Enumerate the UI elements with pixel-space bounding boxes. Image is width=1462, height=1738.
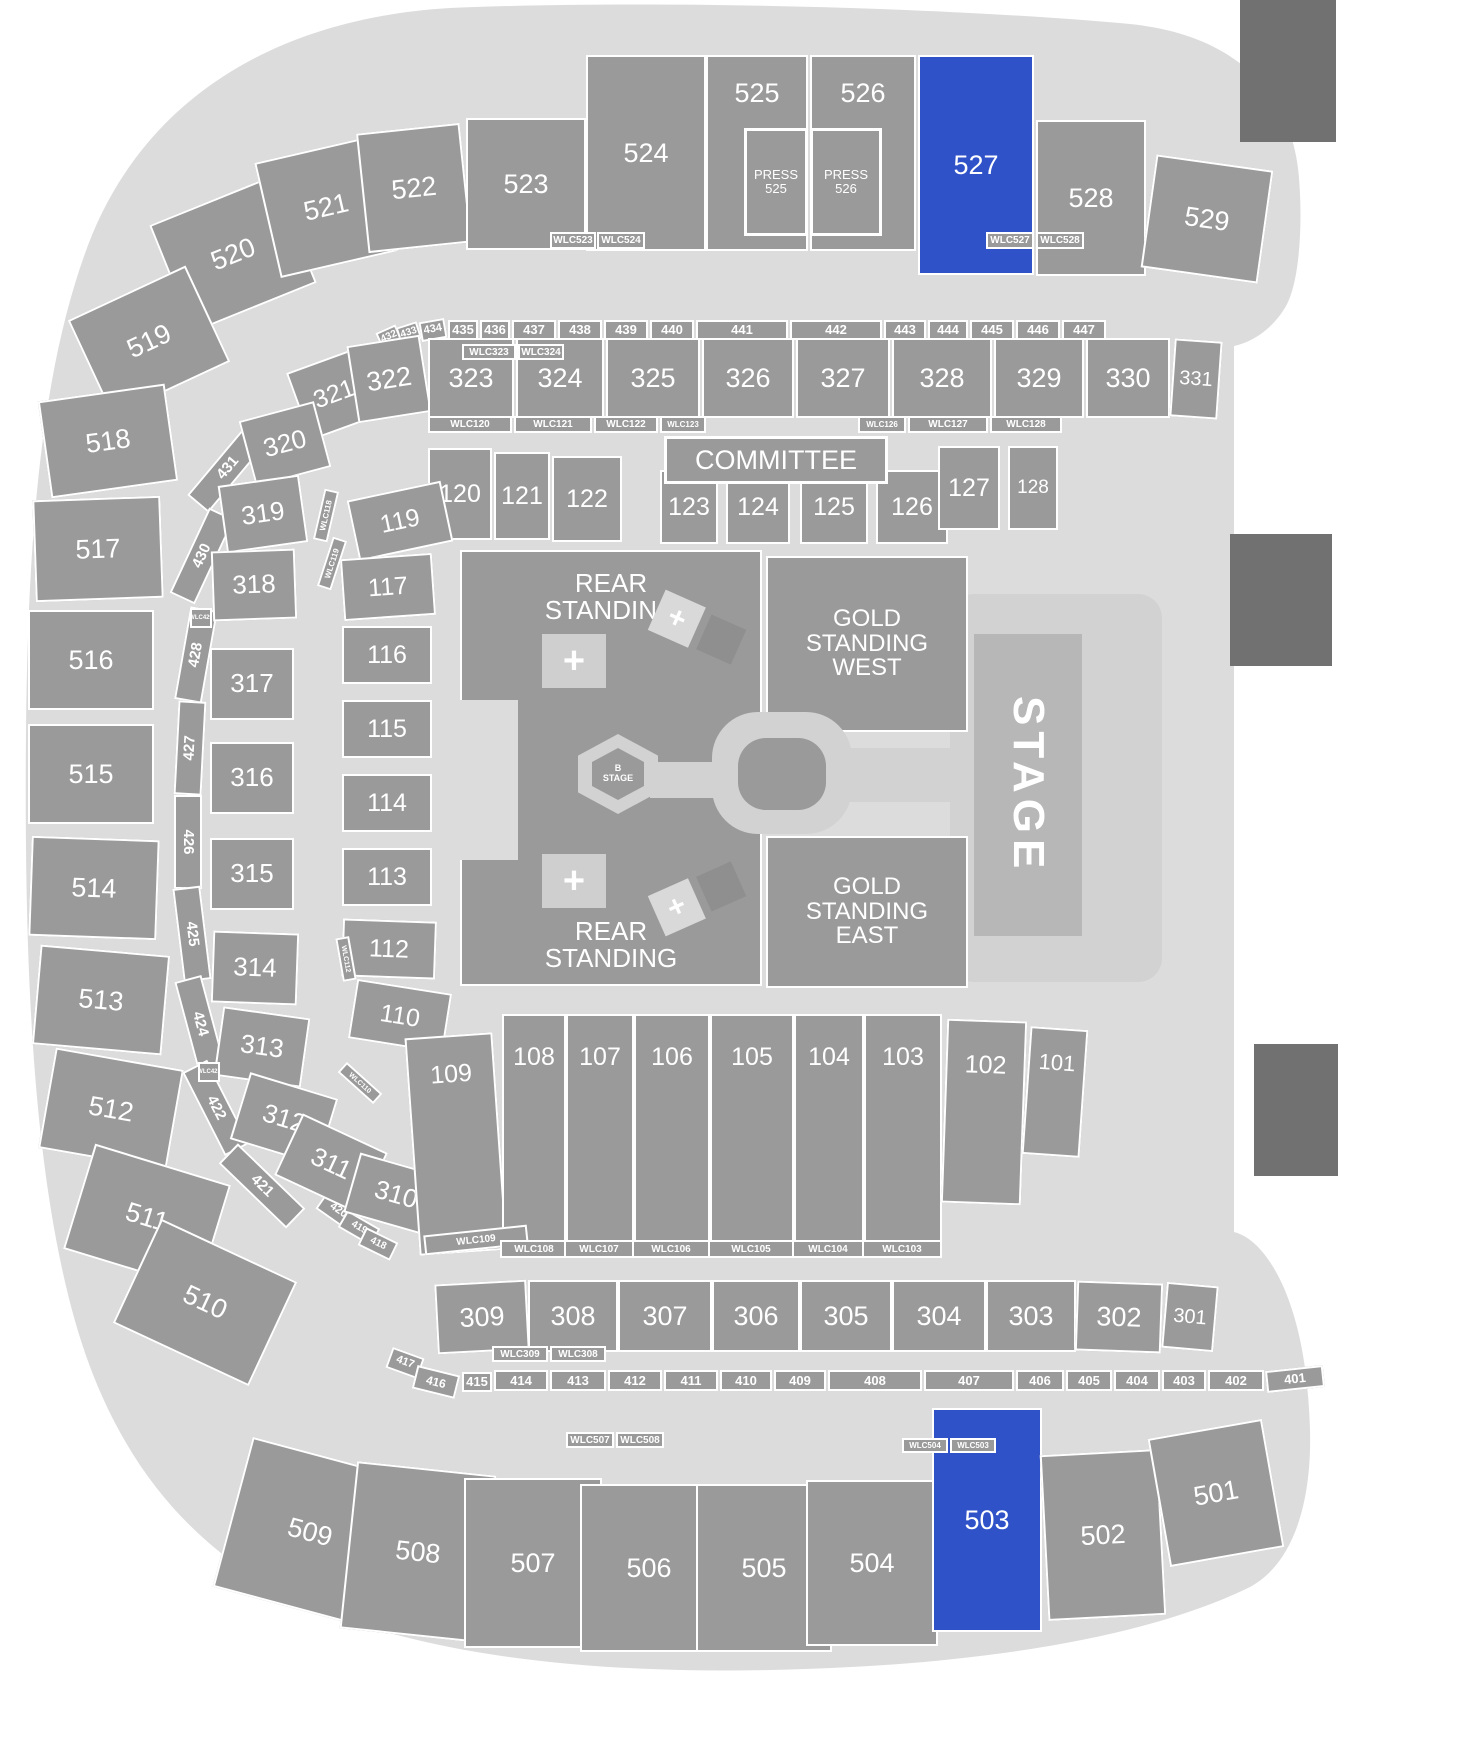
section-516[interactable]: 516 <box>28 610 154 710</box>
section-114[interactable]: 114 <box>342 774 432 832</box>
section-322[interactable]: 322 <box>346 335 431 424</box>
section-504[interactable]: 504 <box>806 1480 938 1646</box>
section-436[interactable]: 436 <box>480 320 510 340</box>
section-524[interactable]: 524 <box>586 55 706 251</box>
section-404[interactable]: 404 <box>1114 1370 1160 1391</box>
section-529[interactable]: 529 <box>1141 154 1274 283</box>
section-127[interactable]: 127 <box>938 446 1000 530</box>
section-407[interactable]: 407 <box>924 1370 1014 1391</box>
section-117[interactable]: 117 <box>340 553 436 621</box>
wlc423-badge: WLC423 <box>198 1062 220 1082</box>
section-315[interactable]: 315 <box>210 838 294 910</box>
section-403[interactable]: 403 <box>1162 1370 1206 1391</box>
section-522[interactable]: 522 <box>356 123 472 253</box>
section-518[interactable]: 518 <box>38 384 178 499</box>
wlc128-badge: WLC128 <box>990 416 1062 433</box>
wlc103-badge: WLC103 <box>862 1240 942 1258</box>
wlc309-badge: WLC309 <box>492 1346 548 1362</box>
section-106[interactable]: 106 <box>634 1014 710 1256</box>
wlc106-badge: WLC106 <box>632 1240 710 1258</box>
section-gold-standing-west[interactable]: GOLD STANDING WEST <box>766 556 968 732</box>
section-308[interactable]: 308 <box>528 1280 618 1352</box>
section-405[interactable]: 405 <box>1066 1370 1112 1391</box>
section-128[interactable]: 128 <box>1008 446 1058 530</box>
section-102[interactable]: 102 <box>941 1019 1027 1206</box>
catwalk-runway <box>846 748 958 802</box>
wlc524-badge: WLC524 <box>597 232 645 249</box>
wlc123-badge: WLC123 <box>660 416 706 433</box>
section-435[interactable]: 435 <box>448 320 478 340</box>
floor-notch <box>456 700 518 860</box>
wlc122-badge: WLC122 <box>594 416 658 433</box>
section-104[interactable]: 104 <box>794 1014 864 1256</box>
section-press-526[interactable]: PRESS 526 <box>810 128 882 236</box>
wlc429-badge: WLC429 <box>190 608 212 628</box>
screen-block-top <box>1240 0 1336 142</box>
section-501[interactable]: 501 <box>1148 1419 1285 1567</box>
wlc507-badge: WLC507 <box>566 1432 614 1448</box>
section-112[interactable]: 112 <box>341 918 437 979</box>
section-302[interactable]: 302 <box>1075 1281 1163 1354</box>
section-414[interactable]: 414 <box>494 1370 548 1391</box>
section-411[interactable]: 411 <box>664 1370 718 1391</box>
section-413[interactable]: 413 <box>550 1370 606 1391</box>
section-406[interactable]: 406 <box>1016 1370 1064 1391</box>
section-446[interactable]: 446 <box>1016 320 1060 340</box>
section-325[interactable]: 325 <box>606 338 700 418</box>
platform-tile <box>696 614 746 664</box>
wlc104-badge: WLC104 <box>792 1240 864 1258</box>
section-306[interactable]: 306 <box>712 1280 800 1352</box>
section-444[interactable]: 444 <box>928 320 968 340</box>
section-101[interactable]: 101 <box>1022 1026 1089 1158</box>
wlc105-badge: WLC105 <box>708 1240 794 1258</box>
section-318[interactable]: 318 <box>211 549 297 622</box>
wlc126-badge: WLC126 <box>858 416 906 433</box>
section-408[interactable]: 408 <box>828 1370 922 1391</box>
section-502[interactable]: 502 <box>1040 1449 1167 1621</box>
section-115[interactable]: 115 <box>342 700 432 758</box>
section-309[interactable]: 309 <box>434 1280 530 1355</box>
section-319[interactable]: 319 <box>218 475 309 554</box>
section-402[interactable]: 402 <box>1208 1370 1264 1391</box>
section-121[interactable]: 121 <box>494 452 550 540</box>
plus-icon: + <box>542 854 606 908</box>
section-314[interactable]: 314 <box>211 931 299 1006</box>
section-108[interactable]: 108 <box>502 1014 566 1256</box>
section-316[interactable]: 316 <box>210 742 294 814</box>
screen-block-bottom <box>1254 1044 1338 1176</box>
wlc504-badge: WLC504 <box>902 1438 948 1453</box>
section-445[interactable]: 445 <box>970 320 1014 340</box>
section-514[interactable]: 514 <box>28 836 159 940</box>
wlc107-badge: WLC107 <box>564 1240 634 1258</box>
section-517[interactable]: 517 <box>32 496 163 602</box>
stadium-seat-map: 520 521 522 523 524 525 526 527 528 529 … <box>0 0 1462 1738</box>
section-426[interactable]: 426 <box>174 795 202 889</box>
section-122[interactable]: 122 <box>552 456 622 542</box>
section-328[interactable]: 328 <box>892 338 992 418</box>
section-440[interactable]: 440 <box>650 320 694 340</box>
section-438[interactable]: 438 <box>558 320 602 340</box>
section-301[interactable]: 301 <box>1161 1282 1219 1352</box>
section-415[interactable]: 415 <box>462 1372 492 1392</box>
wlc528-badge: WLC528 <box>1036 232 1084 249</box>
section-515[interactable]: 515 <box>28 724 154 824</box>
section-113[interactable]: 113 <box>342 848 432 906</box>
section-513[interactable]: 513 <box>32 945 170 1056</box>
section-press-525[interactable]: PRESS 525 <box>744 128 808 236</box>
wlc120-badge: WLC120 <box>428 416 512 433</box>
section-441[interactable]: 441 <box>696 320 788 340</box>
section-105[interactable]: 105 <box>710 1014 794 1256</box>
section-329[interactable]: 329 <box>994 338 1084 418</box>
plus-icon: + <box>542 634 606 688</box>
wlc308-badge: WLC308 <box>550 1346 606 1362</box>
section-326[interactable]: 326 <box>702 338 794 418</box>
section-437[interactable]: 437 <box>512 320 556 340</box>
section-409[interactable]: 409 <box>774 1370 826 1391</box>
catwalk-connector <box>650 762 716 798</box>
section-410[interactable]: 410 <box>720 1370 772 1391</box>
screen-block-middle <box>1230 534 1332 666</box>
wlc523-badge: WLC523 <box>550 232 596 249</box>
section-305[interactable]: 305 <box>800 1280 892 1352</box>
section-443[interactable]: 443 <box>884 320 926 340</box>
section-331[interactable]: 331 <box>1169 338 1222 419</box>
wlc508-badge: WLC508 <box>616 1432 664 1448</box>
wlc503-badge: WLC503 <box>950 1438 996 1453</box>
section-447[interactable]: 447 <box>1062 320 1106 340</box>
section-442[interactable]: 442 <box>790 320 882 340</box>
section-116[interactable]: 116 <box>342 626 432 684</box>
section-330[interactable]: 330 <box>1086 338 1170 418</box>
wlc324-badge: WLC324 <box>518 344 564 360</box>
section-committee[interactable]: COMMITTEE <box>664 436 888 484</box>
section-107[interactable]: 107 <box>566 1014 634 1256</box>
platform-tile <box>696 861 746 911</box>
wlc323-badge: WLC323 <box>462 344 516 360</box>
section-528[interactable]: 528 <box>1036 120 1146 276</box>
wlc527-badge: WLC527 <box>986 232 1034 249</box>
section-303[interactable]: 303 <box>986 1280 1076 1352</box>
wlc108-badge: WLC108 <box>500 1240 568 1258</box>
section-439[interactable]: 439 <box>604 320 648 340</box>
section-307[interactable]: 307 <box>618 1280 712 1352</box>
catwalk-loop-center <box>738 738 826 810</box>
section-427[interactable]: 427 <box>174 700 207 795</box>
section-gold-standing-east[interactable]: GOLD STANDING EAST <box>766 836 968 988</box>
wlc127-badge: WLC127 <box>908 416 988 433</box>
section-317[interactable]: 317 <box>210 648 294 720</box>
section-304[interactable]: 304 <box>892 1280 986 1352</box>
wlc121-badge: WLC121 <box>514 416 592 433</box>
section-109[interactable]: 109 <box>405 1032 508 1256</box>
section-327[interactable]: 327 <box>796 338 890 418</box>
stage: STAGE <box>974 634 1082 936</box>
section-103[interactable]: 103 <box>864 1014 942 1256</box>
section-523[interactable]: 523 <box>466 118 586 250</box>
section-412[interactable]: 412 <box>608 1370 662 1391</box>
